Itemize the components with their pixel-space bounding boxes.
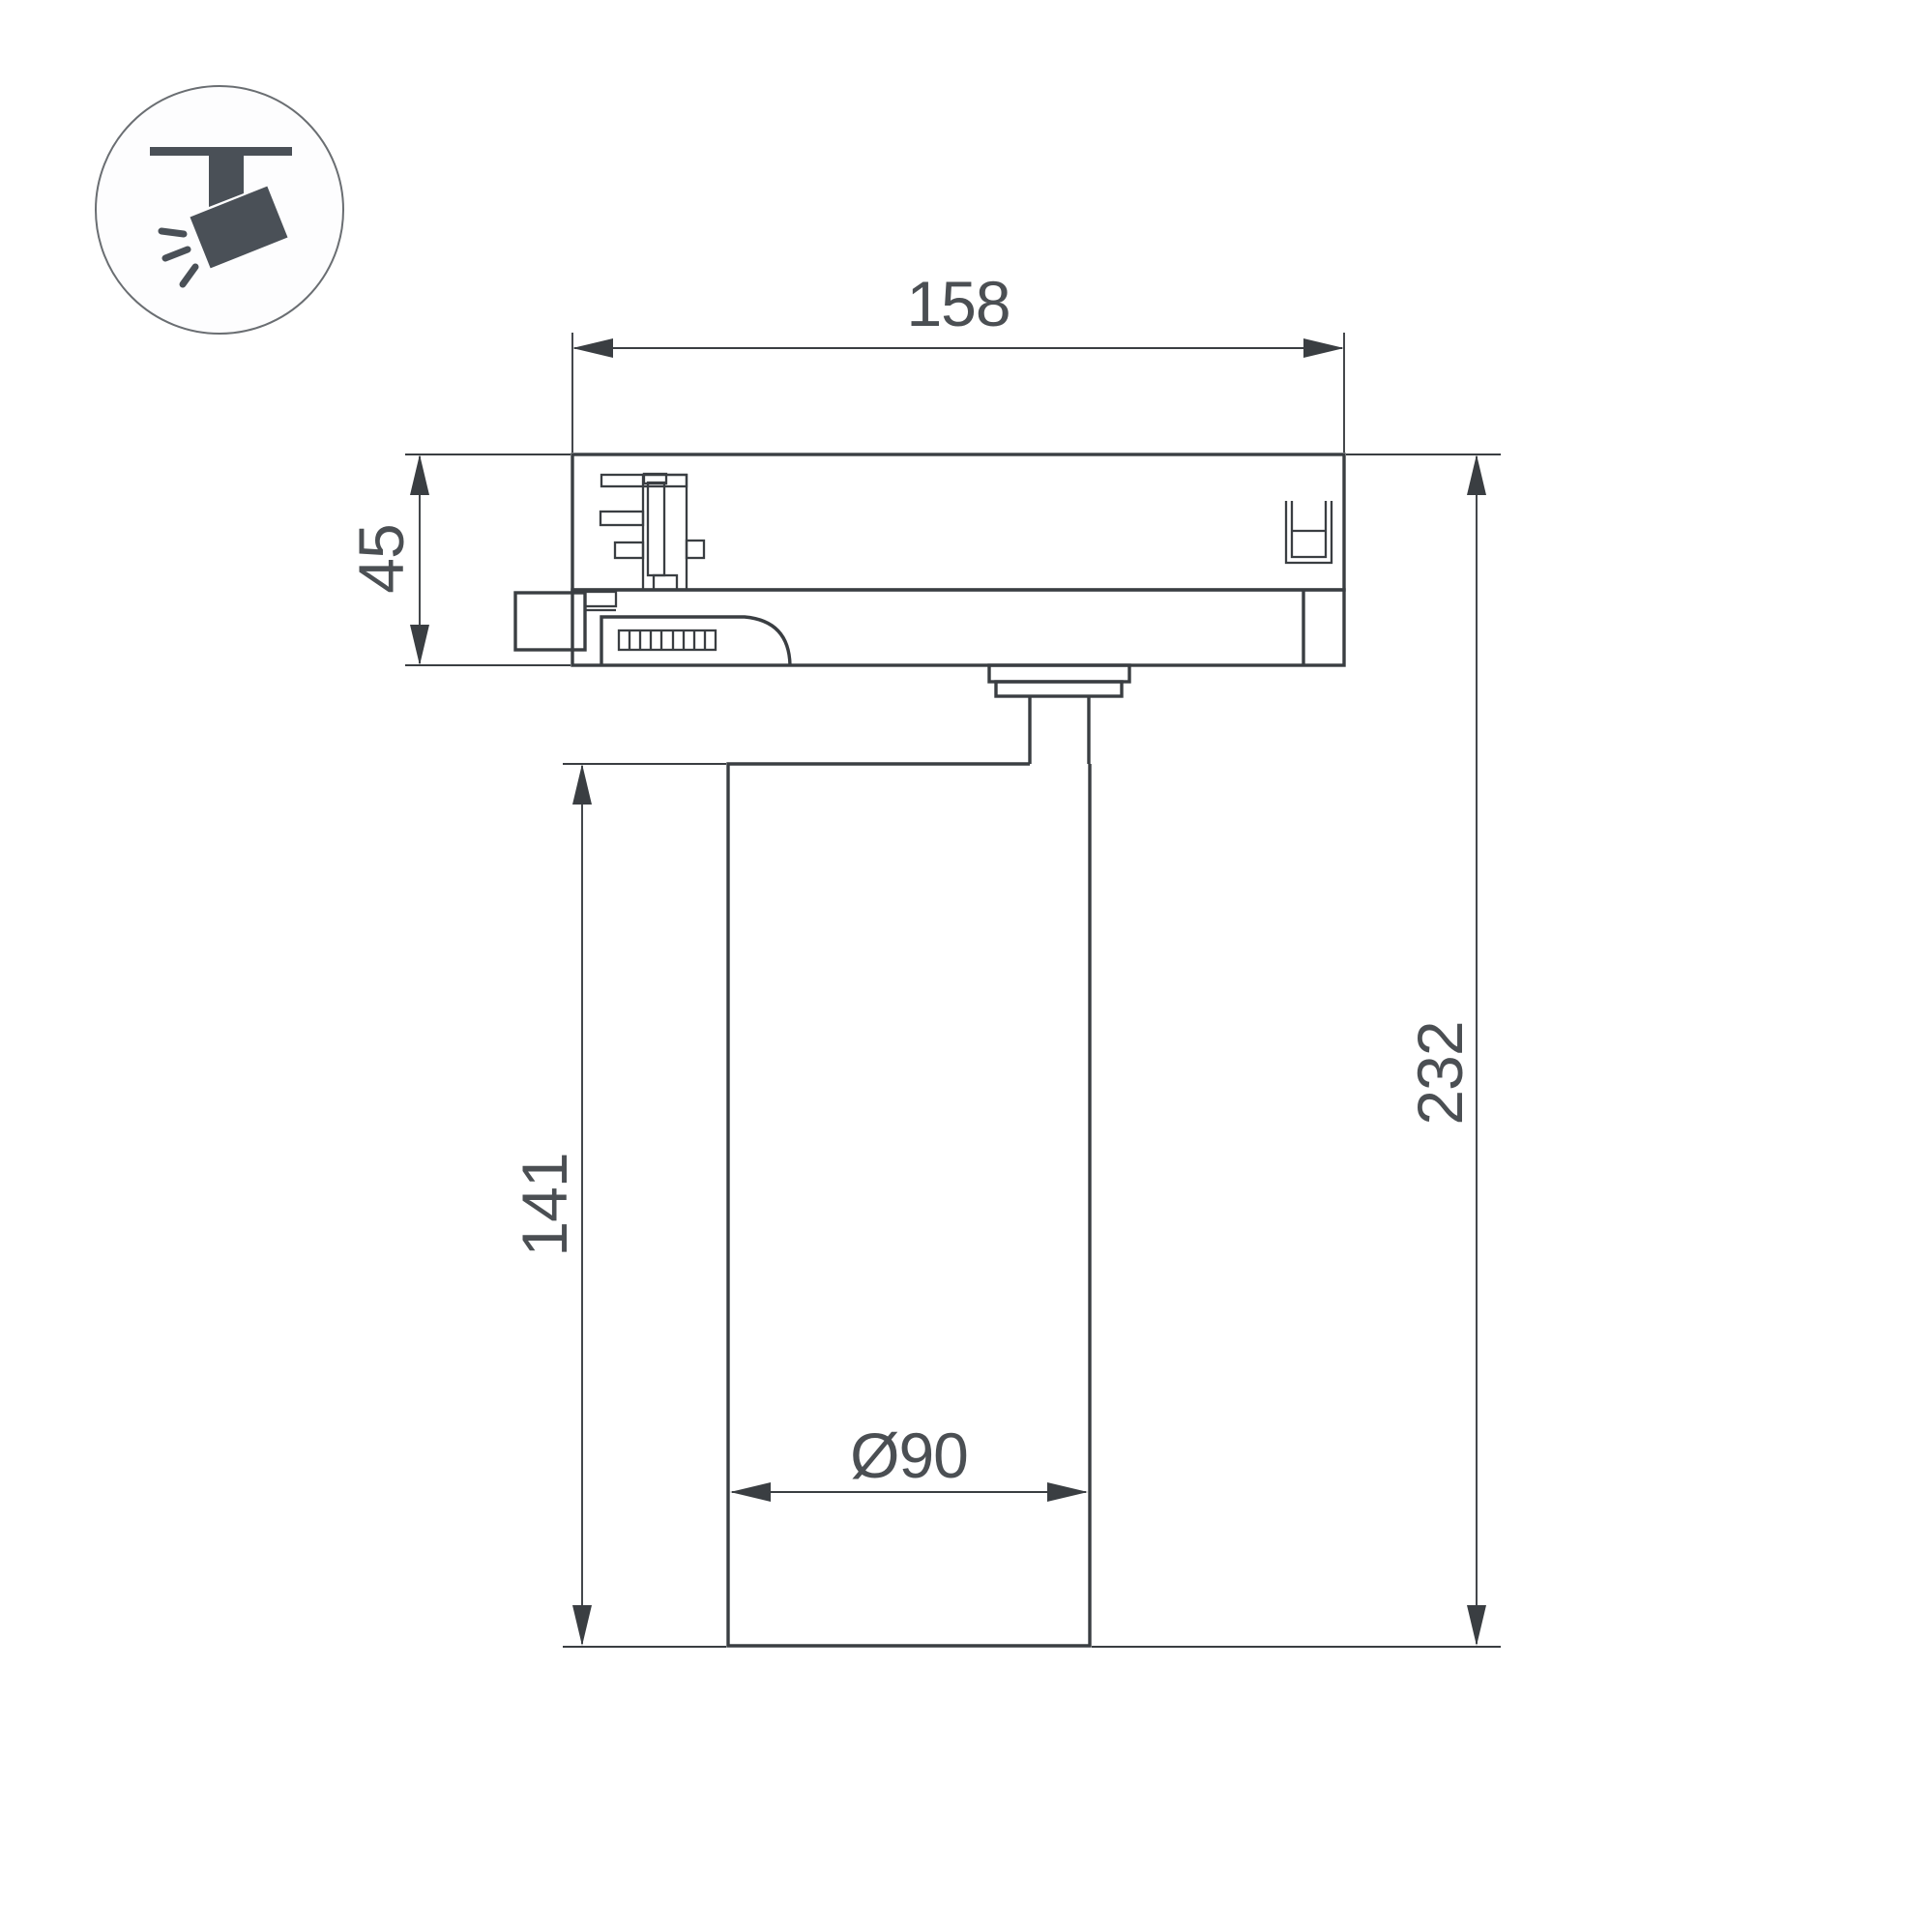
arrowhead-up <box>410 454 429 495</box>
arrowhead-down <box>410 625 429 665</box>
comb-pin <box>648 483 664 575</box>
comb-prong-right <box>687 541 704 558</box>
arrowhead-up <box>572 764 592 805</box>
latch-hook <box>585 592 616 606</box>
arrowhead-down <box>572 1605 592 1646</box>
comb-prong-bottom <box>615 542 643 558</box>
dimension-adapter-height: 45 <box>345 454 571 665</box>
arrowhead-up <box>1467 454 1486 495</box>
contact-comb <box>600 474 704 590</box>
light-ray-icon <box>161 231 184 234</box>
dimensions: 158 45 141 <box>345 268 1501 1647</box>
technical-drawing: 158 45 141 <box>0 0 1932 1932</box>
adapter-base <box>572 590 1344 665</box>
lamp-body <box>728 764 1090 1646</box>
dim-label-width: 158 <box>906 268 1010 339</box>
dimension-width: 158 <box>572 268 1344 453</box>
arrowhead-right <box>1047 1482 1088 1502</box>
dimension-body-height: 141 <box>509 764 726 1647</box>
dim-label-diameter: Ø90 <box>850 1420 968 1491</box>
adapter-housing <box>572 454 1344 590</box>
icon-track-bar <box>150 147 292 156</box>
dim-label-body-height: 141 <box>509 1153 580 1256</box>
dimension-total-height: 232 <box>1092 454 1501 1647</box>
arrowhead-left <box>730 1482 771 1502</box>
slider-frame <box>619 630 716 650</box>
comb-foot <box>654 575 677 590</box>
dimension-diameter: Ø90 <box>730 1420 1088 1502</box>
right-clip <box>1286 501 1332 563</box>
product-icon <box>96 86 343 334</box>
dim-label-total-height: 232 <box>1404 1021 1476 1125</box>
dim-label-adapter-height: 45 <box>345 524 417 593</box>
drawing-page: 158 45 141 <box>0 0 1932 1932</box>
arrowhead-down <box>1467 1605 1486 1646</box>
mount-flange-lower <box>996 682 1122 696</box>
release-latch <box>515 593 585 650</box>
mount-flange-upper <box>989 665 1129 682</box>
clip-inner <box>1292 501 1326 557</box>
comb-prong-middle <box>600 512 643 525</box>
arrowhead-right <box>1303 338 1344 358</box>
slider-ribs <box>629 630 705 650</box>
arrowhead-left <box>572 338 613 358</box>
